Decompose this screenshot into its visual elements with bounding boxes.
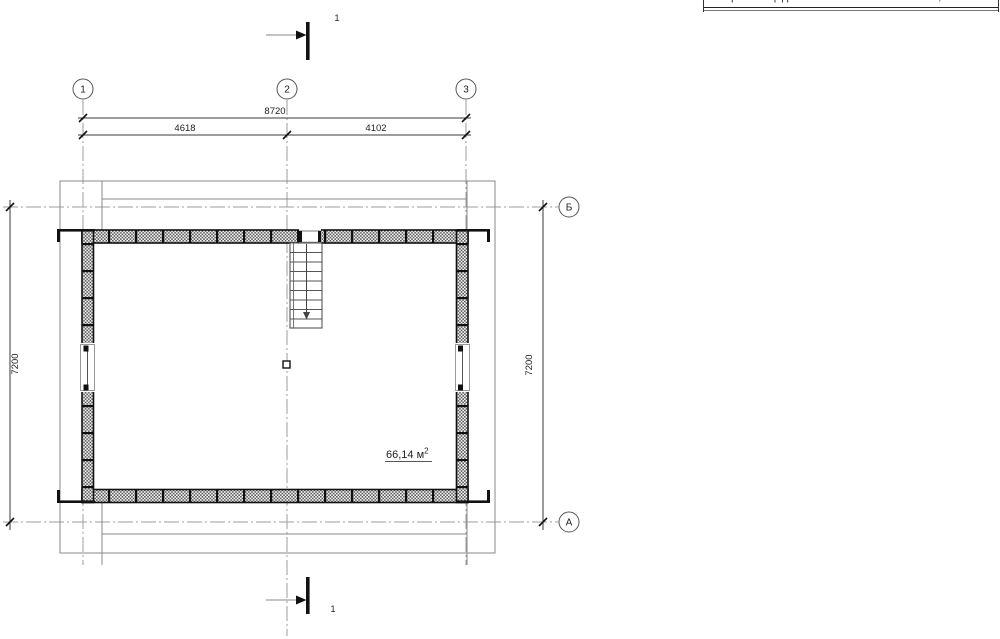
grid-bubbles: 1 2 3 Б А — [73, 79, 579, 532]
wall-top-dividers — [82, 230, 468, 243]
area-value-text: 66,14 м — [386, 449, 424, 461]
grid-bubble-3-label: 3 — [463, 85, 469, 96]
grid-bubble-b-label: Б — [566, 203, 573, 214]
grid-bubble-1-label: 1 — [80, 85, 86, 96]
section-mark-bottom: 1 — [266, 577, 336, 614]
section-arrow-top-icon — [296, 31, 307, 40]
svg-text:66,14 м2: 66,14 м2 — [386, 447, 429, 462]
summary-table-bottom-rule — [704, 10, 998, 11]
eave-hook-bottom-left-drop — [57, 490, 60, 503]
dim-text-left-bay: 4618 — [174, 123, 195, 134]
dim-text-total-width: 8720 — [264, 106, 285, 117]
eave-hook-top-left-bar — [57, 229, 95, 232]
wall-bottom-dividers — [82, 490, 468, 503]
floor-plan-canvas: 8720 4618 4102 7200 7200 1 2 3 Б А — [0, 0, 1000, 639]
column-marker — [283, 361, 290, 368]
area-label: 66,14 м2 — [385, 447, 432, 462]
eave-hook-bottom-right-drop — [487, 490, 490, 503]
summary-table-row: Общая площадь 66,14 — [704, 0, 998, 8]
eave-hook-bottom-right-bar — [457, 500, 490, 503]
window-left — [80, 343, 96, 392]
grid-bubble-2-label: 2 — [284, 85, 290, 96]
windows — [80, 343, 471, 392]
eave-hook-bottom-left-bar — [57, 500, 95, 503]
top-dimensions: 8720 4618 4102 — [78, 106, 471, 139]
floor-plan-sheet: 8720 4618 4102 7200 7200 1 2 3 Б А — [0, 0, 1000, 639]
area-sup-text: 2 — [424, 447, 429, 456]
dim-text-right-bay: 4102 — [365, 123, 386, 134]
section-arrow-bottom-icon — [296, 596, 307, 605]
wall-top-opening — [299, 229, 321, 245]
summary-table-value: 66,14 — [926, 0, 954, 3]
eave-hook-top-right-bar — [457, 229, 490, 232]
summary-table-fragment: Общая площадь 66,14 — [703, 0, 999, 12]
dim-text-height-left: 7200 — [10, 353, 21, 374]
grid-bubble-a-label: А — [566, 518, 573, 529]
section-mark-top: 1 — [266, 13, 340, 60]
section-top-label: 1 — [334, 13, 339, 23]
summary-table-label: Общая площадь — [709, 0, 794, 3]
dim-text-height-right: 7200 — [524, 354, 535, 375]
section-bar-top — [306, 22, 310, 60]
stairs — [290, 243, 322, 328]
eave-hook-top-right-drop — [487, 229, 490, 242]
window-right — [455, 343, 471, 392]
section-bottom-label: 1 — [330, 604, 335, 614]
section-bar-bottom — [306, 577, 310, 614]
eave-hook-top-left-drop — [57, 229, 60, 242]
